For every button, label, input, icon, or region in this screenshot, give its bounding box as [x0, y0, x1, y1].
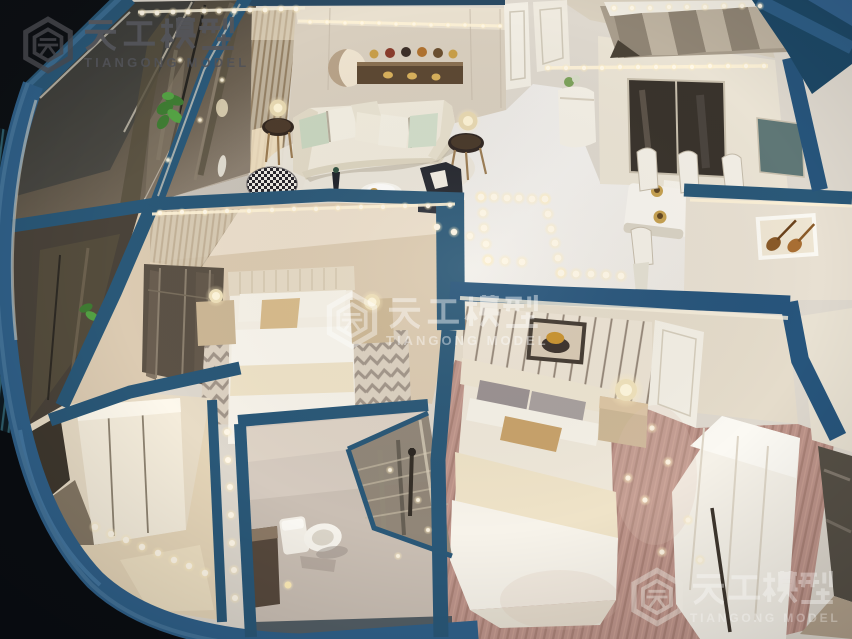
svg-text:TIANGONG MODEL: TIANGONG MODEL: [690, 611, 841, 625]
svg-text:TIANGONG MODEL: TIANGONG MODEL: [386, 333, 549, 348]
svg-text:TIANGONG MODEL: TIANGONG MODEL: [84, 55, 249, 70]
